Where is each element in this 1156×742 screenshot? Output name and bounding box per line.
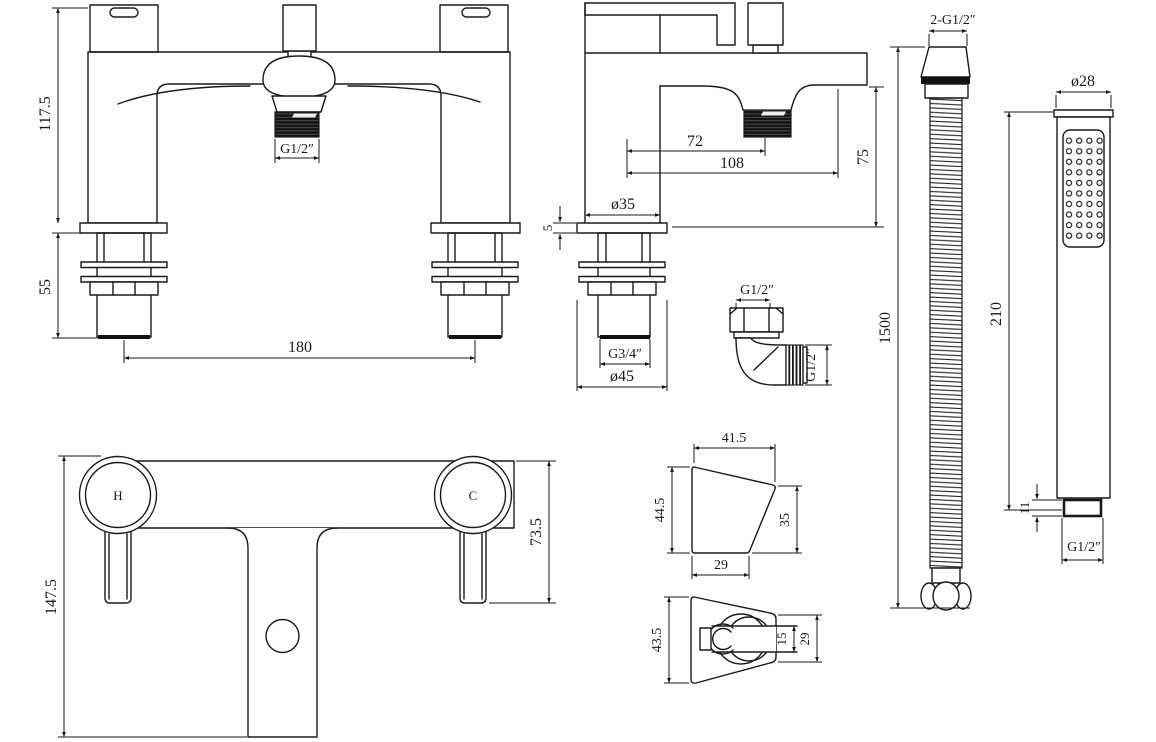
dim-side-spout-height: 75	[855, 149, 872, 165]
dim-handset-connector-thread: G1/2″	[1067, 540, 1101, 555]
diverter-neck-side	[753, 45, 778, 53]
diverter-assembly-front	[263, 5, 335, 137]
spout-curve-left	[118, 86, 250, 104]
dim-elbow-outlet-thread: G1/2″	[804, 348, 819, 382]
bracket-clip-tab	[700, 628, 711, 650]
spray-nozzles	[1064, 135, 1105, 241]
hose-collar	[925, 84, 968, 98]
dim-plan-overall-depth: 147.5	[43, 579, 60, 615]
dim-side-deck-thickness: 5	[540, 225, 555, 232]
dim-bracket-height: 44.5	[653, 498, 668, 523]
hose-cone-fitting	[921, 47, 970, 77]
hot-label: H	[113, 488, 122, 503]
dim-handset-connector-length: 11	[1017, 502, 1032, 515]
hose-end-nut	[921, 582, 971, 610]
dim-front-shank-length: 55	[37, 279, 54, 295]
dim-side-base-diameter: ø45	[610, 368, 634, 385]
dim-side-body-diameter: ø35	[611, 196, 635, 213]
dim-handset-length: 210	[988, 302, 1005, 326]
shower-handset: ø28 210 11 G1/2″	[988, 73, 1113, 564]
bracket-side-outline	[692, 467, 775, 553]
side-dimensions: ø35 5 72 108 75 G3/4″ ø45	[540, 87, 884, 391]
dim-bracket-base-width: 29	[714, 558, 728, 573]
cold-label: C	[469, 488, 478, 503]
diverter-bulb	[263, 56, 335, 97]
hose-end-collar	[932, 568, 960, 583]
dim-hose-end-threads: 2-G1/2″	[930, 13, 976, 28]
handset-cap	[1054, 110, 1113, 117]
diverter-knob-side	[748, 3, 783, 45]
front-dimensions: 117.5 55 180 G1/2″	[37, 8, 475, 363]
dim-side-spout-reach: 108	[720, 155, 744, 172]
spout-curve-right	[348, 86, 480, 102]
elbow-outlet-thread	[786, 345, 803, 385]
handset-connector-stub	[1064, 500, 1101, 516]
drawing-canvas: 117.5 55 180 G1/2″	[0, 0, 1156, 742]
mounting-shank-left	[81, 233, 167, 339]
deck-flange-right	[431, 223, 520, 233]
deck-flange-left	[80, 223, 167, 233]
dim-handset-diameter: ø28	[1071, 73, 1095, 90]
technical-drawing-sheet: 117.5 55 180 G1/2″	[0, 0, 1156, 742]
deck-flange-side	[577, 223, 667, 233]
dim-bracket-holder-width: 29	[797, 633, 812, 646]
side-view: ø35 5 72 108 75 G3/4″ ø45	[540, 3, 884, 391]
dim-bracket-front-height: 35	[778, 513, 793, 527]
dim-front-outlet-thread: G1/2″	[280, 142, 314, 157]
cold-handle-front	[440, 5, 508, 52]
dim-front-tap-centres: 180	[288, 339, 312, 356]
dim-hose-length: 1500	[877, 312, 894, 344]
wall-bracket-side-view: 41.5 44.5 35 29	[653, 431, 802, 579]
plan-view: H C 147.5 73.5	[43, 456, 556, 737]
elbow-fitting: G1/2″ G1/2″	[730, 283, 832, 385]
bracket-side-dimensions: 41.5 44.5 35 29	[653, 431, 802, 579]
dim-front-height: 117.5	[37, 96, 54, 131]
dim-bracket-slot-width: 15	[774, 633, 789, 646]
hose-flexible-section	[930, 98, 962, 568]
dim-plan-handle-projection: 73.5	[528, 518, 545, 546]
hot-handle-front	[90, 5, 158, 52]
wall-bracket-top-view: 43.5 15 29	[650, 597, 822, 683]
dim-side-shank-thread: G3/4″	[608, 347, 642, 362]
diverter-cone	[272, 96, 326, 112]
hose-band	[921, 77, 970, 84]
dim-elbow-nut-thread: G1/2″	[740, 283, 774, 298]
elbow-nut	[730, 308, 783, 332]
front-view: 117.5 55 180 G1/2″	[37, 5, 520, 363]
spout-side-right	[585, 53, 867, 110]
dim-bracket-top-width: 41.5	[722, 431, 747, 446]
elbow-collar	[734, 332, 779, 338]
thread-highlight-side	[761, 112, 786, 116]
shower-hose: 2-G1/2″ 1500	[877, 13, 976, 610]
mounting-shank-side	[579, 233, 665, 339]
dim-side-spout-centre: 72	[687, 133, 703, 150]
thread-highlight	[292, 114, 317, 118]
spout-side-left	[660, 86, 743, 110]
elbow-body	[736, 338, 786, 385]
diverter-knob	[283, 5, 316, 51]
dim-bracket-width: 43.5	[650, 628, 665, 653]
mounting-shank-right	[432, 233, 518, 339]
